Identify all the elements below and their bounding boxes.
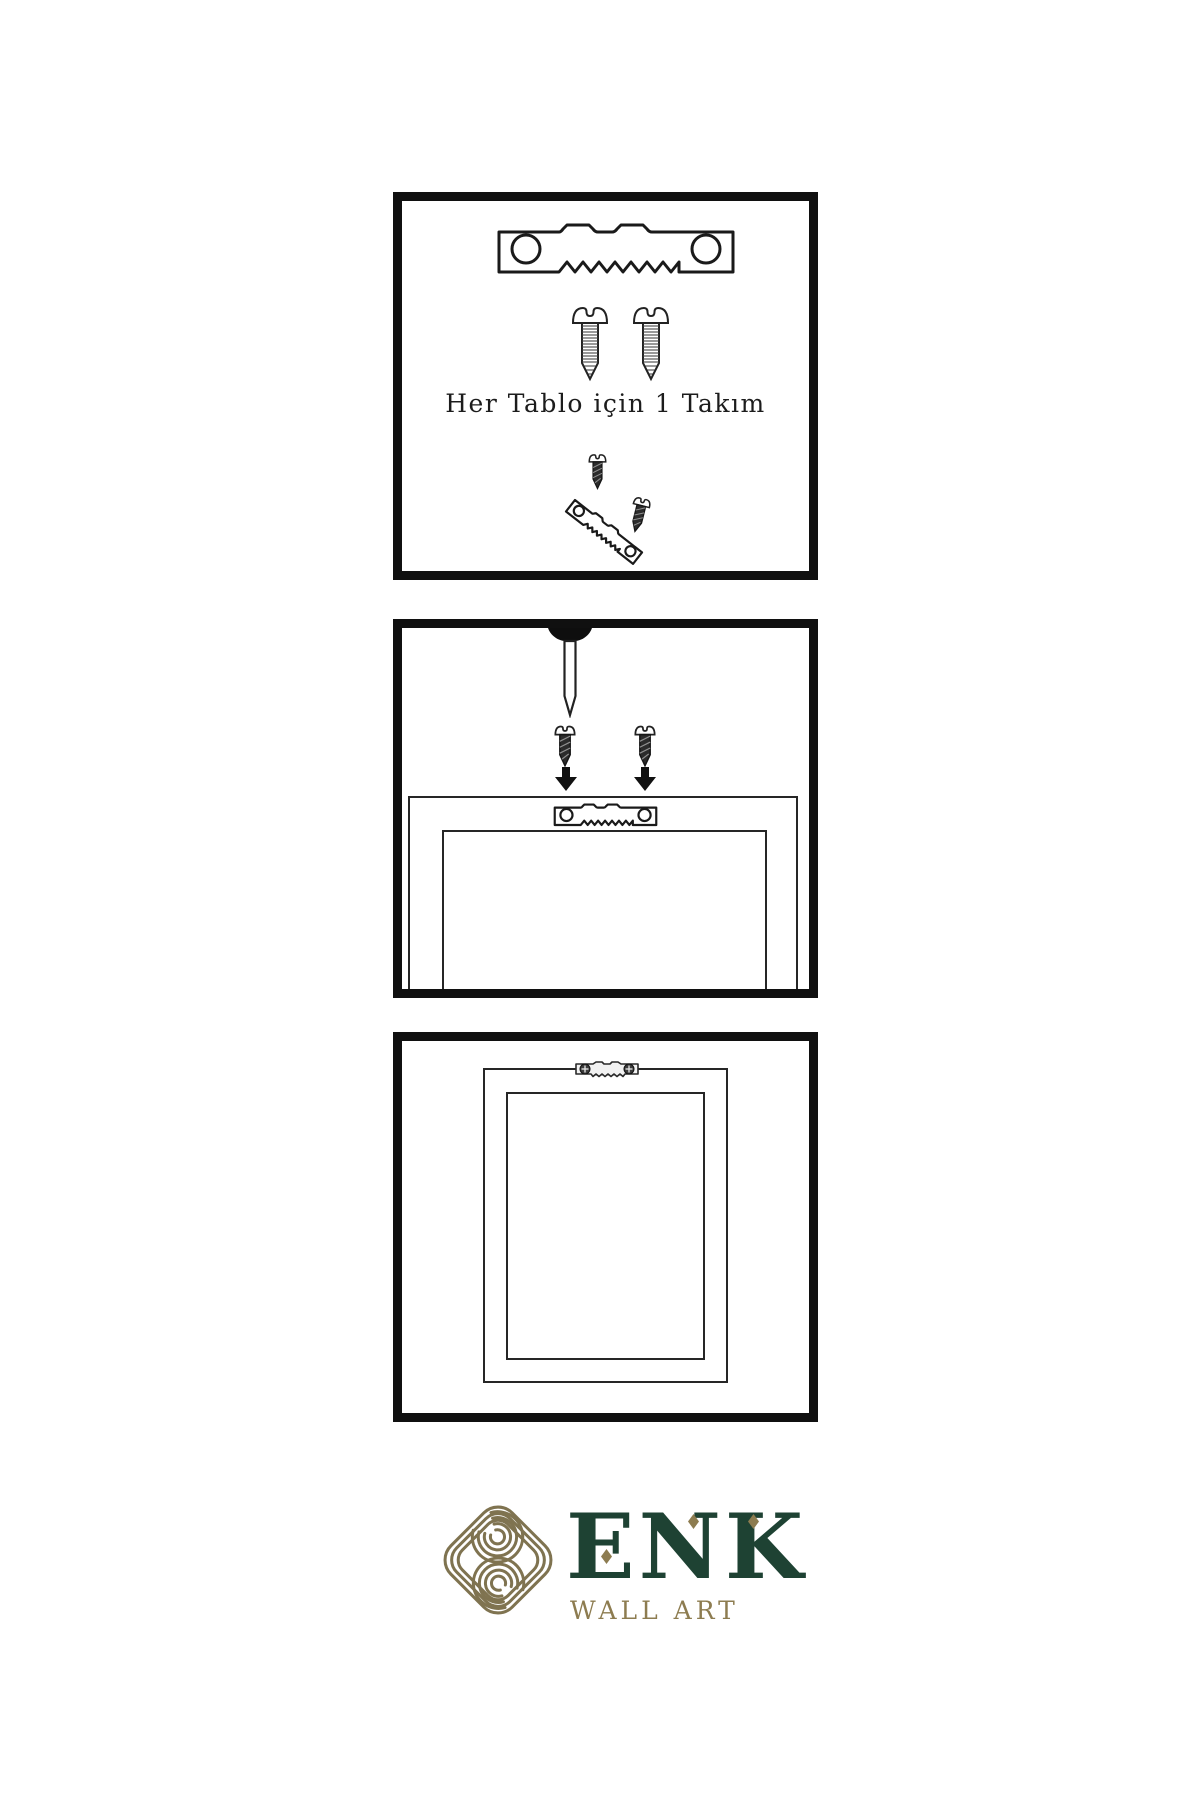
nail-icon — [548, 628, 592, 718]
dark-screw-icon — [588, 453, 607, 491]
down-arrow-icon — [555, 767, 577, 791]
brand-subtitle: WALL ART — [570, 1596, 739, 1625]
down-arrow-icon — [634, 767, 656, 791]
installation-instructions-sheet: Her Tablo için 1 Takım — [0, 0, 1200, 1800]
instruction-step-3-panel — [393, 1032, 818, 1422]
knot-icon — [435, 1494, 561, 1626]
dark-screw-icon — [550, 725, 580, 768]
brand-name: ENK — [566, 1502, 807, 1592]
frame-back-inner-outline — [442, 830, 767, 989]
dark-screw-icon — [630, 725, 660, 768]
instruction-step-2-panel — [393, 619, 818, 998]
mounted-sawtooth-hanger-icon — [575, 1061, 639, 1078]
dark-screw-icon — [625, 495, 653, 536]
sawtooth-hanger-icon — [553, 802, 658, 828]
hung-frame-inner-outline — [506, 1092, 705, 1360]
sawtooth-hanger-icon — [495, 222, 737, 276]
kit-caption: Her Tablo için 1 Takım — [402, 389, 809, 418]
instruction-step-1-panel: Her Tablo için 1 Takım — [393, 192, 818, 580]
screw-icon — [570, 305, 610, 383]
screw-icon — [631, 305, 671, 383]
